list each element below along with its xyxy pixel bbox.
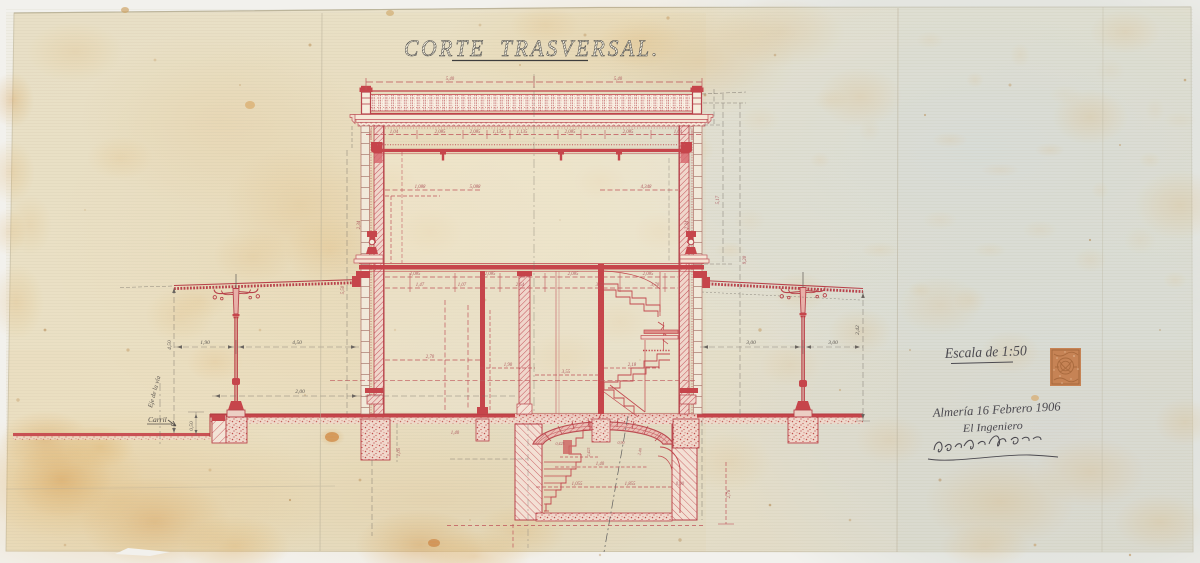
svg-text:2,00: 2,00 (295, 389, 305, 395)
svg-text:1,05: 1,05 (397, 447, 402, 456)
svg-text:3,00: 3,00 (745, 340, 756, 346)
svg-text:TRASVERSAL.: TRASVERSAL. (500, 36, 660, 61)
svg-text:4,348: 4,348 (641, 185, 652, 190)
svg-text:2,18: 2,18 (628, 363, 637, 368)
svg-text:0,90: 0,90 (676, 482, 685, 487)
svg-text:1,088: 1,088 (415, 185, 426, 190)
svg-text:Escala de 1:50: Escala de 1:50 (944, 343, 1028, 362)
svg-text:2,085: 2,085 (565, 130, 576, 135)
svg-text:1,40: 1,40 (596, 462, 605, 467)
svg-text:1,055: 1,055 (572, 482, 583, 487)
svg-text:5,50: 5,50 (341, 285, 346, 294)
svg-text:9,20: 9,20 (743, 255, 748, 264)
svg-text:1,855: 1,855 (625, 482, 636, 487)
svg-text:2,085: 2,085 (485, 272, 496, 277)
svg-text:1,04: 1,04 (674, 130, 683, 135)
svg-text:1,40: 1,40 (451, 431, 460, 436)
svg-text:1,07: 1,07 (458, 283, 467, 288)
svg-text:2,085: 2,085 (643, 272, 654, 277)
svg-text:2,76: 2,76 (727, 489, 732, 498)
svg-text:4,50: 4,50 (166, 340, 173, 350)
svg-text:1,90: 1,90 (200, 340, 210, 346)
svg-text:5,40: 5,40 (614, 77, 623, 82)
svg-text:1,135: 1,135 (517, 130, 528, 135)
svg-text:CORTE: CORTE (404, 36, 486, 61)
svg-text:3,52: 3,52 (596, 283, 605, 288)
svg-text:3,70: 3,70 (651, 283, 660, 288)
svg-text:5,40: 5,40 (446, 77, 455, 82)
svg-text:2,085: 2,085 (568, 272, 579, 277)
svg-text:3,00: 3,00 (827, 340, 838, 346)
svg-text:Carril: Carril (148, 415, 167, 424)
svg-text:2,70: 2,70 (426, 355, 435, 360)
svg-text:4,50: 4,50 (292, 339, 302, 346)
svg-text:1,47: 1,47 (416, 283, 425, 288)
svg-text:2,42: 2,42 (854, 325, 861, 335)
svg-text:2,085: 2,085 (470, 130, 481, 135)
svg-text:1,04: 1,04 (390, 130, 399, 135)
svg-text:1,135: 1,135 (493, 130, 504, 135)
svg-text:1,90: 1,90 (504, 363, 513, 368)
svg-text:5,088: 5,088 (470, 185, 481, 190)
svg-text:2,085: 2,085 (435, 130, 446, 135)
svg-text:2,54: 2,54 (516, 283, 525, 288)
svg-text:5,17: 5,17 (716, 195, 721, 204)
svg-text:2,34: 2,34 (357, 220, 362, 229)
svg-text:0,50: 0,50 (189, 421, 195, 431)
svg-text:3,55: 3,55 (562, 370, 571, 375)
svg-text:2,085: 2,085 (623, 130, 634, 135)
svg-text:2,085: 2,085 (410, 272, 421, 277)
svg-text:2,34: 2,34 (685, 220, 690, 229)
